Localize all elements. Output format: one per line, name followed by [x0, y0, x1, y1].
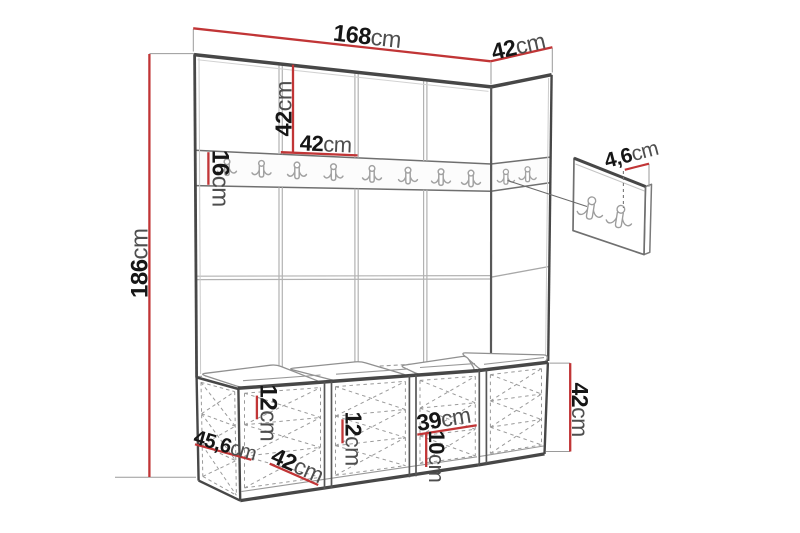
svg-text:12cm: 12cm: [254, 385, 281, 442]
svg-text:186cm: 186cm: [127, 228, 154, 298]
svg-text:16cm: 16cm: [207, 150, 234, 207]
svg-text:42cm: 42cm: [299, 130, 352, 157]
svg-text:42cm: 42cm: [270, 81, 296, 136]
svg-text:42cm: 42cm: [567, 383, 593, 437]
svg-text:10cm: 10cm: [424, 431, 449, 483]
svg-text:12cm: 12cm: [340, 412, 366, 466]
